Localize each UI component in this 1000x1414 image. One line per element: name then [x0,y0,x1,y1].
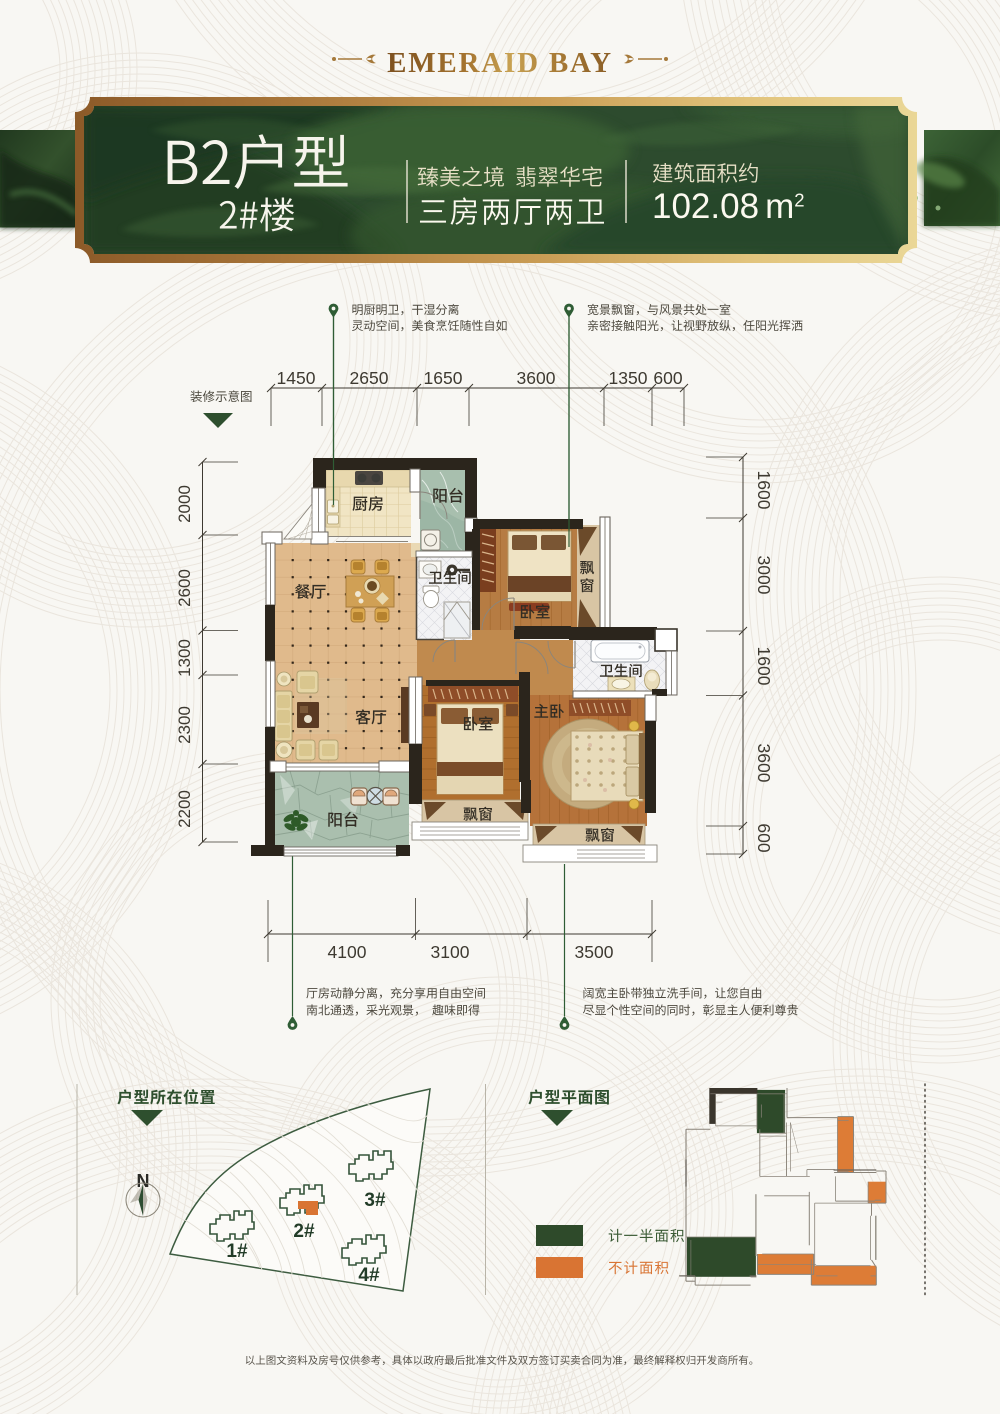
svg-text:4#: 4# [358,1265,380,1286]
svg-text:4100: 4100 [328,942,367,962]
svg-text:3600: 3600 [754,744,774,783]
svg-text:3000: 3000 [754,556,774,595]
svg-text:2000: 2000 [175,485,194,523]
svg-text:2200: 2200 [175,790,194,828]
svg-text:3#: 3# [364,1190,386,1211]
svg-text:2300: 2300 [175,706,194,744]
svg-text:3600: 3600 [517,368,556,388]
svg-text:1450: 1450 [277,368,316,388]
svg-text:2650: 2650 [350,368,389,388]
svg-text:2#: 2# [293,1221,315,1242]
svg-text:102.08m2: 102.08m2 [652,187,805,226]
svg-text:1300: 1300 [175,639,194,677]
svg-text:600: 600 [653,368,682,388]
svg-text:1650: 1650 [424,368,463,388]
svg-text:1#: 1# [226,1241,248,1262]
svg-text:1600: 1600 [754,471,774,510]
svg-text:600: 600 [754,823,774,852]
svg-text:3100: 3100 [431,942,470,962]
svg-text:3500: 3500 [575,942,614,962]
svg-text:EMERAID BAY: EMERAID BAY [387,47,613,79]
svg-text:1350: 1350 [609,368,648,388]
svg-text:1600: 1600 [754,647,774,686]
svg-text:2600: 2600 [175,569,194,607]
